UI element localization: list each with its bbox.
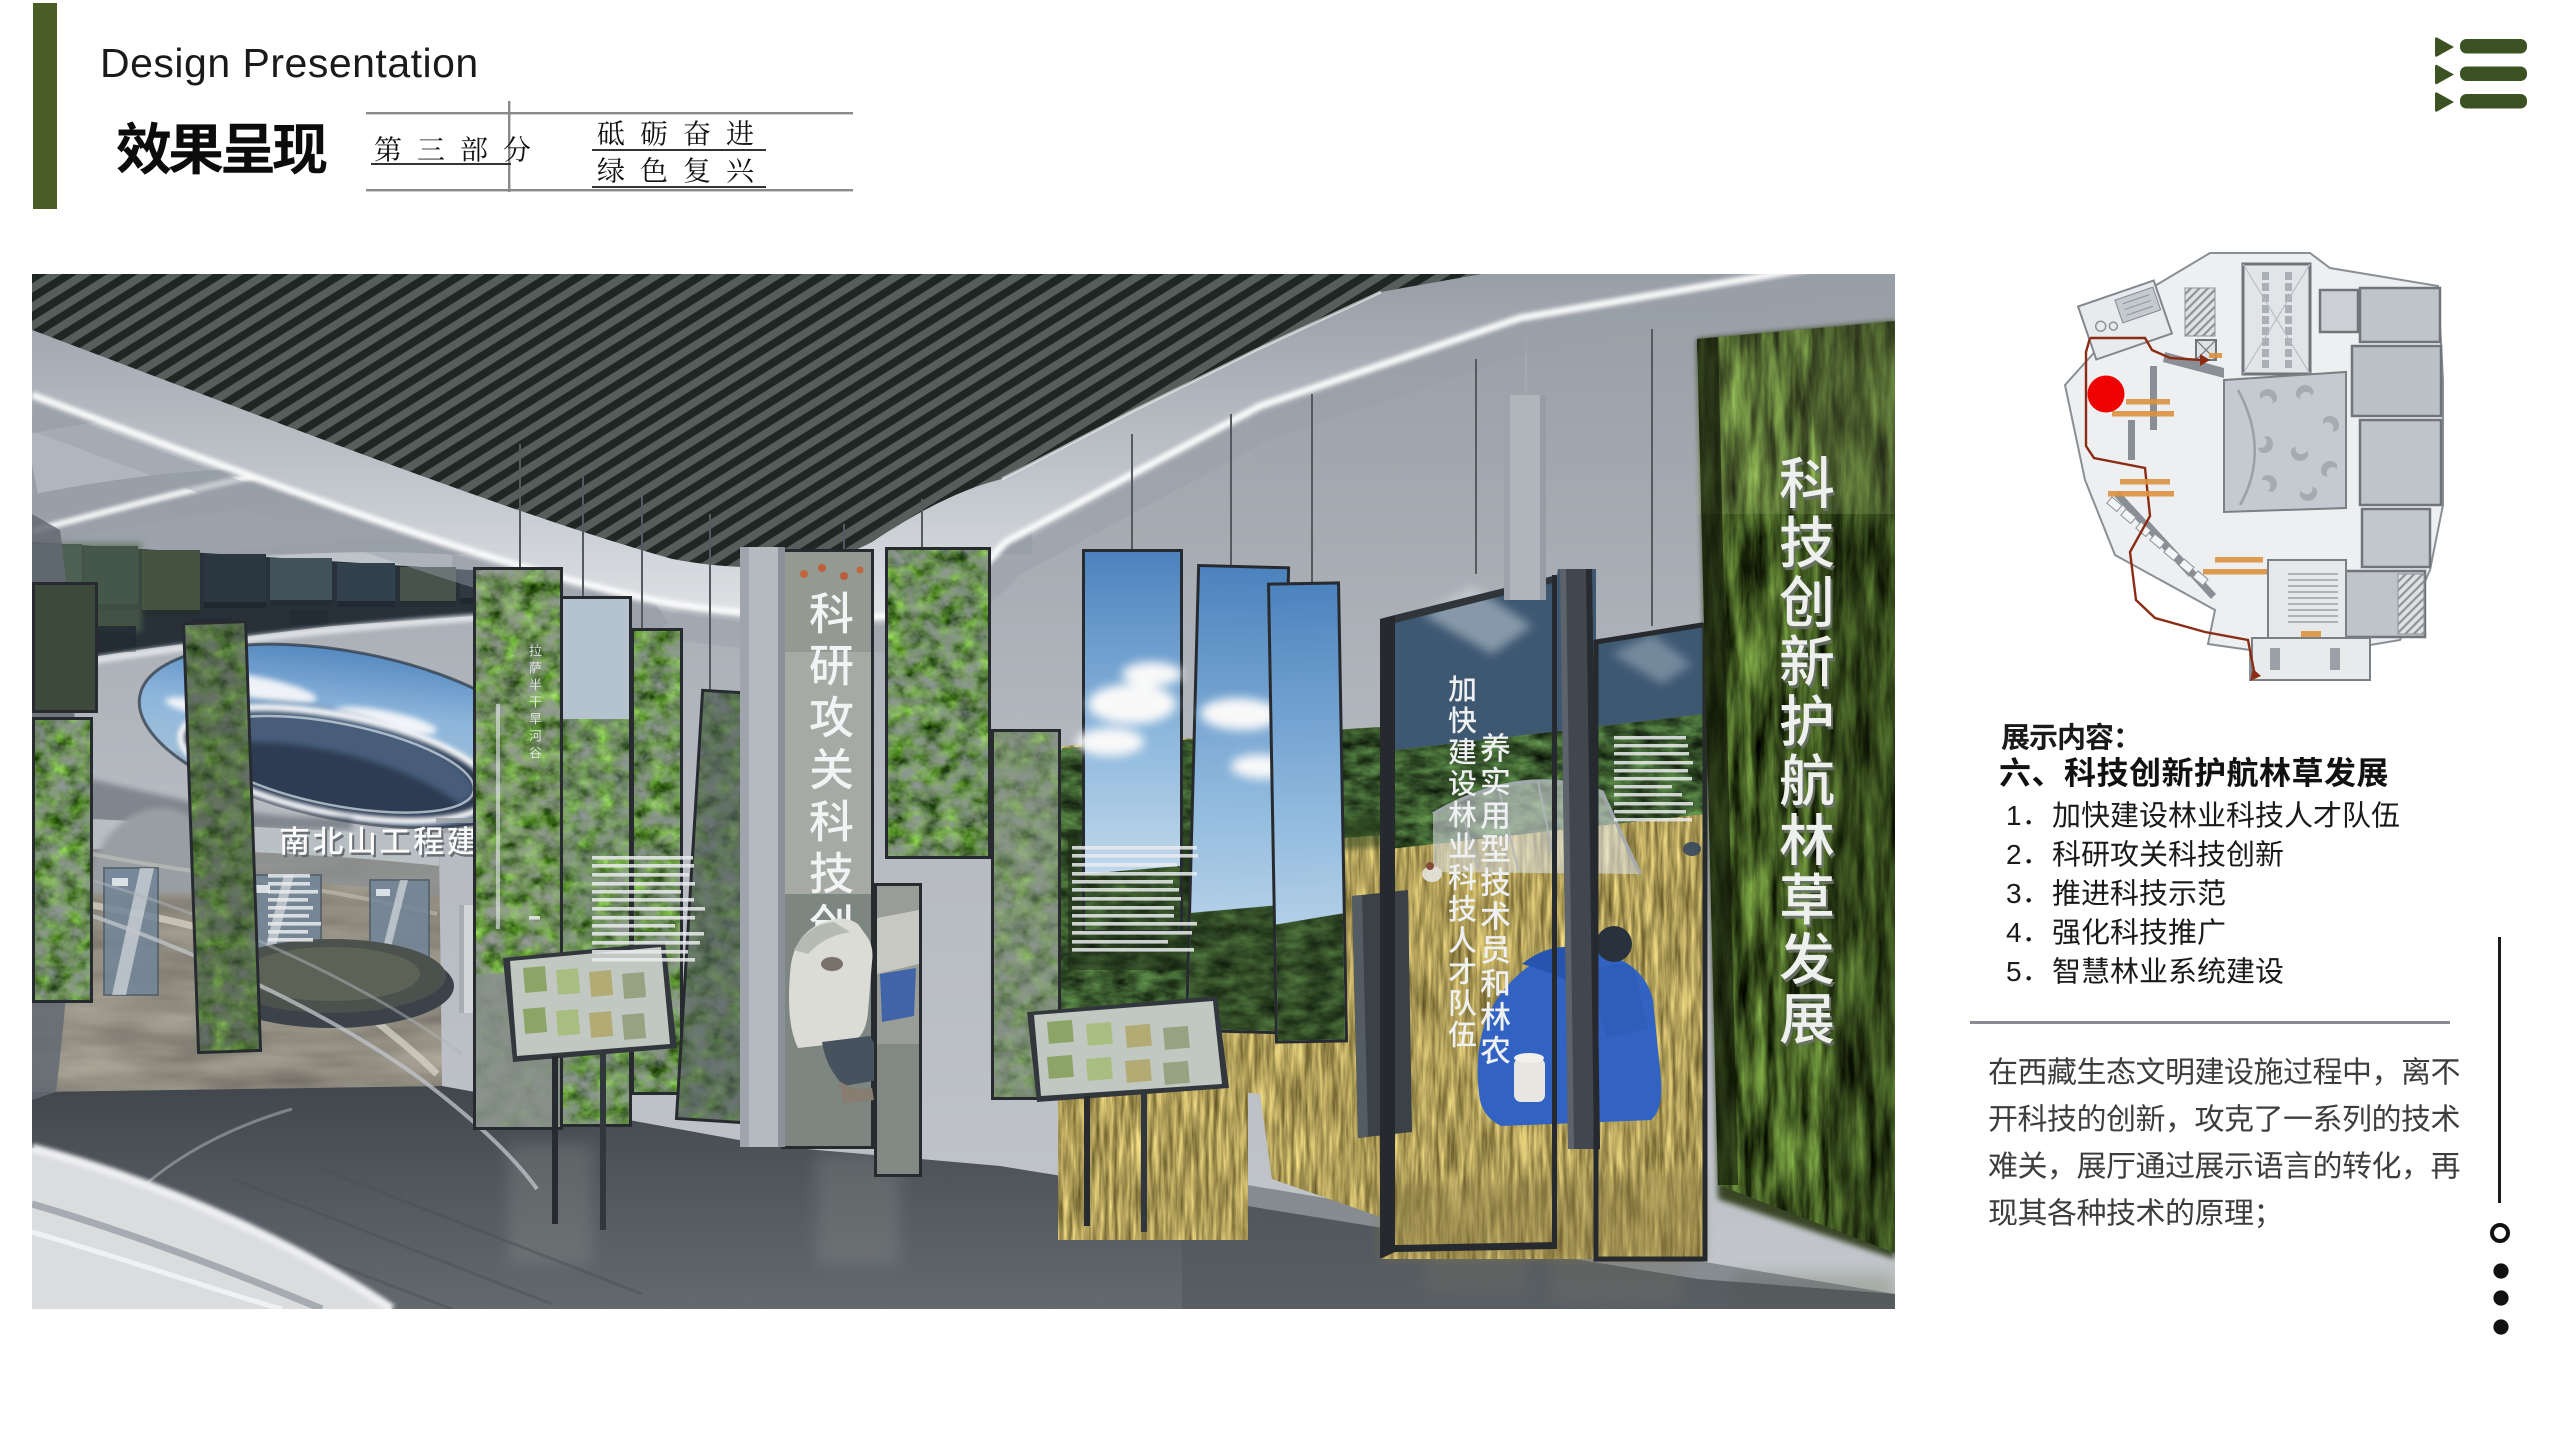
svg-text:2: 2 xyxy=(2006,839,2022,870)
svg-text:3: 3 xyxy=(2006,878,2022,909)
svg-text:4: 4 xyxy=(2006,917,2022,948)
svg-text:1: 1 xyxy=(2006,800,2022,831)
svg-text:5: 5 xyxy=(2006,956,2022,987)
